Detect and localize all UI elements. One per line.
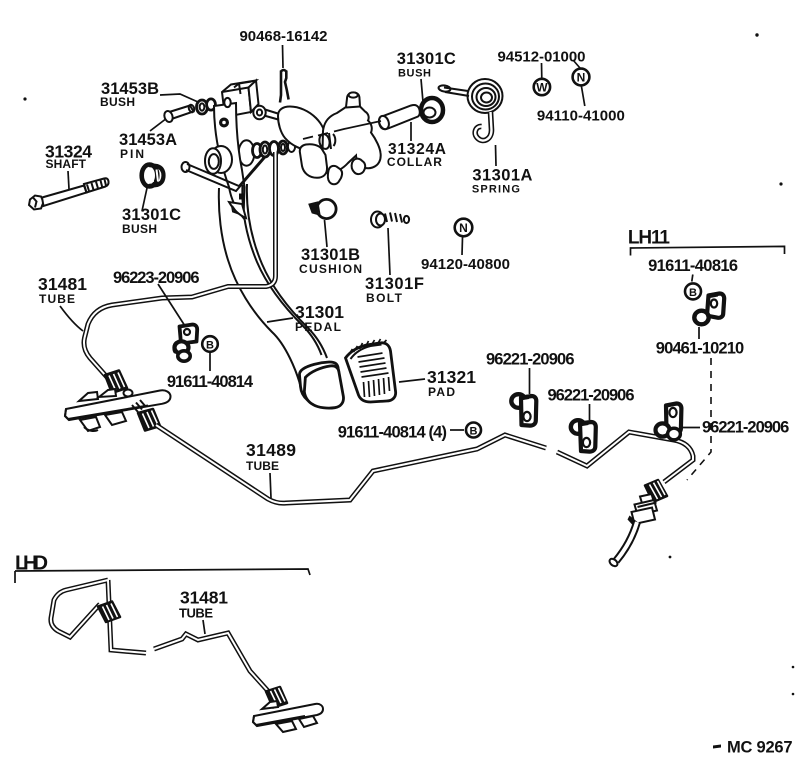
svg-text:96221-20906: 96221-20906: [486, 351, 575, 369]
svg-text:SPRING: SPRING: [472, 184, 520, 196]
svg-text:BUSH: BUSH: [100, 95, 135, 109]
svg-text:LH11: LH11: [628, 227, 670, 248]
svg-text:31301A: 31301A: [472, 166, 532, 184]
svg-text:94110-41000: 94110-41000: [537, 108, 625, 125]
svg-text:31489: 31489: [246, 440, 296, 460]
svg-text:N: N: [577, 71, 586, 85]
svg-text:BUSH: BUSH: [398, 68, 431, 80]
svg-text:COLLAR: COLLAR: [387, 155, 442, 169]
svg-text:31301C: 31301C: [397, 50, 456, 68]
svg-text:31481: 31481: [180, 588, 228, 608]
svg-text:PAD: PAD: [428, 385, 455, 399]
svg-text:96221-20906: 96221-20906: [548, 387, 635, 405]
svg-text:91611-40816: 91611-40816: [648, 257, 738, 275]
svg-text:TUBE: TUBE: [179, 606, 213, 621]
svg-text:CUSHION: CUSHION: [299, 262, 362, 276]
svg-text:TUBE: TUBE: [39, 292, 75, 306]
svg-text:PIN: PIN: [120, 147, 144, 161]
svg-text:94512-01000: 94512-01000: [498, 49, 586, 66]
svg-text:B: B: [470, 426, 478, 438]
svg-text:90468-16142: 90468-16142: [240, 28, 328, 45]
svg-text:91611-40814: 91611-40814: [167, 373, 254, 391]
svg-text:SHAFT: SHAFT: [46, 157, 87, 171]
svg-text:MC 9267: MC 9267: [727, 739, 793, 757]
svg-text:W: W: [536, 81, 548, 95]
svg-text:BOLT: BOLT: [366, 291, 403, 305]
svg-text:94120-40800: 94120-40800: [421, 256, 510, 273]
svg-text:BUSH: BUSH: [122, 222, 157, 236]
svg-text:N: N: [459, 221, 468, 235]
svg-text:31321: 31321: [427, 367, 476, 387]
svg-text:96223-20906: 96223-20906: [113, 269, 200, 287]
svg-text:31301: 31301: [295, 302, 344, 322]
svg-text:90461-10210: 90461-10210: [656, 339, 744, 357]
svg-text:96221-20906: 96221-20906: [702, 418, 789, 436]
svg-text:B: B: [689, 287, 697, 299]
svg-text:B: B: [206, 340, 214, 352]
svg-text:TUBE: TUBE: [246, 459, 279, 473]
svg-text:31481: 31481: [38, 274, 87, 294]
svg-text:PEDAL: PEDAL: [295, 320, 341, 334]
svg-text:91611-40814 (4): 91611-40814 (4): [338, 423, 447, 441]
